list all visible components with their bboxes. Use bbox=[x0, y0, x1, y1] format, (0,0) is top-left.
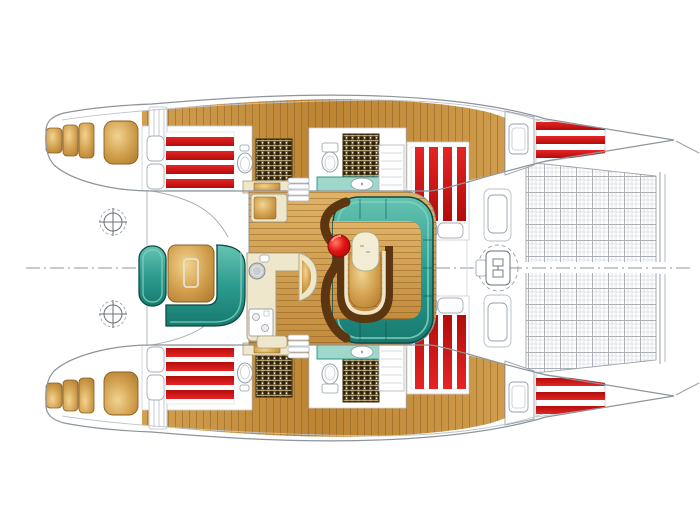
stove bbox=[249, 309, 273, 336]
shower-grating bbox=[256, 139, 292, 183]
pillow bbox=[438, 223, 463, 238]
step bbox=[288, 347, 309, 352]
mast-fitting bbox=[476, 260, 486, 276]
sink-drain bbox=[361, 183, 363, 185]
forward-head bbox=[309, 128, 406, 191]
floor-plan: Sailing catamaran deck and accommodation… bbox=[0, 0, 700, 525]
dinette-bench bbox=[352, 232, 379, 271]
cockpit-table bbox=[168, 245, 214, 302]
berth-stripe bbox=[166, 151, 234, 160]
pillow bbox=[147, 136, 164, 161]
helm-pad bbox=[104, 121, 138, 164]
toilet-icon bbox=[238, 153, 253, 173]
floor-plan-canvas: Sailing catamaran deck and accommodation… bbox=[0, 0, 700, 525]
step bbox=[288, 335, 309, 340]
berth-stripe bbox=[443, 147, 452, 221]
shelf-unit bbox=[379, 145, 404, 191]
step bbox=[288, 178, 309, 183]
swim-step bbox=[46, 128, 62, 153]
berth-stripe bbox=[166, 165, 234, 174]
salon-cabinet-top bbox=[254, 197, 276, 219]
stove-burner bbox=[262, 325, 269, 332]
step bbox=[288, 196, 309, 201]
step bbox=[288, 353, 309, 358]
step bbox=[288, 341, 309, 346]
red-stool bbox=[328, 235, 350, 257]
toilet-icon bbox=[322, 152, 338, 172]
faucet bbox=[260, 255, 269, 262]
berth-stripe bbox=[166, 179, 234, 188]
berth-stripe bbox=[534, 136, 608, 144]
step bbox=[288, 184, 309, 189]
toilet-tank bbox=[240, 145, 249, 151]
step bbox=[288, 190, 309, 195]
swim-step bbox=[63, 125, 78, 156]
shower-grating bbox=[343, 134, 379, 179]
pillow bbox=[147, 164, 164, 189]
berth-stripe bbox=[166, 137, 234, 146]
hatch-lid bbox=[488, 195, 507, 233]
dinette bbox=[325, 197, 433, 343]
galley-locker bbox=[257, 336, 287, 348]
swim-step bbox=[79, 123, 94, 158]
stove-burner bbox=[253, 314, 260, 321]
galley-sink bbox=[249, 263, 265, 279]
toilet-tank bbox=[322, 143, 338, 152]
